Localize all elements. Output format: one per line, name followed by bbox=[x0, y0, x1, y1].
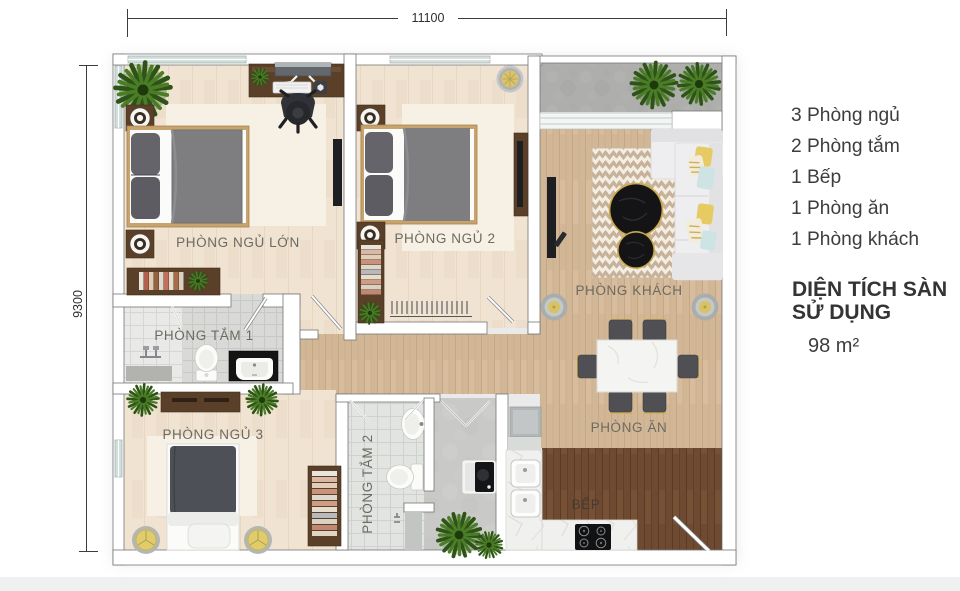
svg-text:BẾP: BẾP bbox=[572, 497, 601, 512]
svg-text:PHÒNG NGỦ 2: PHÒNG NGỦ 2 bbox=[394, 231, 495, 246]
svg-text:DIỆN TÍCH SÀN: DIỆN TÍCH SÀN bbox=[792, 277, 947, 301]
svg-text:98 m²: 98 m² bbox=[808, 335, 859, 357]
svg-text:PHÒNG TẮM 2: PHÒNG TẮM 2 bbox=[360, 434, 375, 533]
svg-text:PHÒNG NGỦ LỚN: PHÒNG NGỦ LỚN bbox=[176, 235, 300, 250]
svg-text:9300: 9300 bbox=[71, 290, 85, 318]
svg-text:PHÒNG TẮM 1: PHÒNG TẮM 1 bbox=[154, 328, 253, 343]
svg-text:1 Phòng khách: 1 Phòng khách bbox=[791, 229, 919, 250]
svg-text:PHÒNG ĂN: PHÒNG ĂN bbox=[591, 420, 668, 435]
svg-text:2 Phòng tắm: 2 Phòng tắm bbox=[791, 135, 900, 157]
svg-text:1 Bếp: 1 Bếp bbox=[791, 167, 841, 188]
svg-text:1 Phòng ăn: 1 Phòng ăn bbox=[791, 198, 889, 219]
svg-text:PHÒNG NGỦ 3: PHÒNG NGỦ 3 bbox=[162, 427, 263, 442]
svg-text:3 Phòng ngủ: 3 Phòng ngủ bbox=[791, 105, 900, 126]
svg-text:PHÒNG KHÁCH: PHÒNG KHÁCH bbox=[575, 283, 682, 298]
svg-text:SỬ DỤNG: SỬ DỤNG bbox=[792, 300, 891, 324]
svg-text:11100: 11100 bbox=[412, 11, 445, 25]
